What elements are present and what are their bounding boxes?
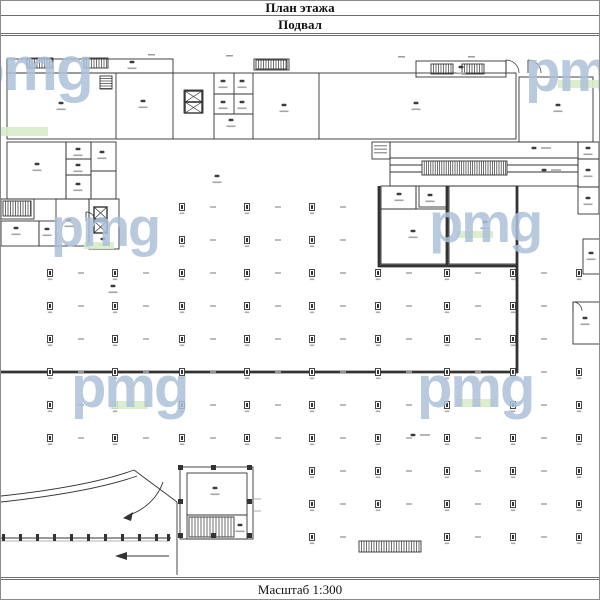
room-label-mark <box>420 434 430 436</box>
room <box>449 186 517 264</box>
grid-dim-mark <box>541 404 547 406</box>
column-label-mark <box>310 213 315 215</box>
grid-dim-mark <box>210 437 216 439</box>
grid-dim-mark <box>541 536 547 538</box>
column-label-mark <box>48 312 53 314</box>
column-label-mark <box>245 345 250 347</box>
column-label-mark <box>180 312 185 314</box>
wall-post <box>247 499 252 504</box>
column-label-mark <box>511 411 516 413</box>
grid-dim-mark <box>275 305 281 307</box>
wall-post <box>87 534 90 541</box>
room-fixture-mark <box>221 101 226 104</box>
grid-dim-mark <box>78 404 84 406</box>
grid-dim-mark <box>340 470 346 472</box>
column-label-mark <box>511 279 516 281</box>
grid-dim-mark <box>406 338 412 340</box>
room-fixture-mark <box>556 104 561 107</box>
grid-dim-mark <box>275 272 281 274</box>
column-label-mark <box>180 246 185 248</box>
room-fixture-mark <box>215 175 220 178</box>
room-label-mark <box>65 226 74 228</box>
arrow-head <box>115 552 127 560</box>
scale-label: Масштаб 1:300 <box>258 582 342 597</box>
grid-dim-mark <box>475 503 481 505</box>
column-label-mark <box>511 378 516 380</box>
column <box>311 337 313 341</box>
room-fixture-mark <box>67 219 72 222</box>
window-hatch <box>431 64 453 74</box>
column-label-mark <box>48 345 53 347</box>
column <box>246 436 248 440</box>
room-fixture-mark <box>411 230 416 233</box>
wall-post <box>178 499 183 504</box>
room <box>381 186 416 209</box>
grid-dim-mark <box>78 437 84 439</box>
column-label-mark <box>180 378 185 380</box>
grid-dim-mark <box>143 338 149 340</box>
column <box>246 271 248 275</box>
wall-post <box>211 465 216 470</box>
room-fixture-mark <box>76 164 81 167</box>
room-fixture-mark <box>141 100 146 103</box>
column-label-mark <box>376 279 381 281</box>
grid-dim-mark <box>340 272 346 274</box>
column <box>512 271 514 275</box>
grid-dim-mark <box>210 404 216 406</box>
column <box>246 238 248 242</box>
grid-dim-mark <box>143 404 149 406</box>
room-label-mark <box>584 176 593 178</box>
column-label-mark <box>113 279 118 281</box>
grid-dim-mark <box>406 305 412 307</box>
column <box>512 436 514 440</box>
column <box>446 403 448 407</box>
column <box>181 205 183 209</box>
room <box>56 199 89 246</box>
room-label-mark <box>280 111 289 113</box>
room-label-mark <box>426 201 435 203</box>
room-label-mark <box>74 155 83 157</box>
column <box>49 271 51 275</box>
dim-text-mark <box>226 55 233 57</box>
column <box>311 271 313 275</box>
grid-dim-mark <box>541 305 547 307</box>
column <box>512 304 514 308</box>
column <box>377 469 379 473</box>
column <box>311 535 313 539</box>
room-fixture-mark <box>397 193 402 196</box>
column-label-mark <box>376 411 381 413</box>
column <box>578 502 580 506</box>
grid-dim-mark <box>340 437 346 439</box>
top-rooms-band <box>7 73 516 139</box>
room-fixture-mark <box>586 147 591 150</box>
wall-post <box>178 465 183 470</box>
room-fixture-mark <box>282 104 287 107</box>
room-label-mark <box>12 234 21 236</box>
column <box>114 337 116 341</box>
column <box>512 469 514 473</box>
wall-post <box>138 534 141 541</box>
column-label-mark <box>310 279 315 281</box>
column <box>311 403 313 407</box>
column-label-mark <box>245 312 250 314</box>
column-label-mark <box>113 444 118 446</box>
column <box>446 370 448 374</box>
room-fixture-mark <box>100 151 105 154</box>
wall-post <box>70 534 73 541</box>
column <box>578 370 580 374</box>
column <box>114 370 116 374</box>
wall-post <box>178 533 183 538</box>
column <box>446 535 448 539</box>
column <box>181 337 183 341</box>
column-label-mark <box>445 543 450 545</box>
wall-post <box>36 534 39 541</box>
room-fixture-mark <box>35 163 40 166</box>
column-label-mark <box>376 477 381 479</box>
dim-text-mark <box>374 145 387 146</box>
room-label-mark <box>587 259 596 261</box>
column <box>246 403 248 407</box>
column <box>181 304 183 308</box>
door-swing <box>573 302 582 311</box>
stair-hatch <box>3 201 31 216</box>
grid-dim-mark <box>275 206 281 208</box>
column <box>377 436 379 440</box>
room-label-mark <box>554 111 563 113</box>
wall-post <box>2 534 5 541</box>
grid-dim-mark <box>275 338 281 340</box>
room-fixture-mark <box>221 80 226 83</box>
column <box>311 502 313 506</box>
column-label-mark <box>310 345 315 347</box>
wall-post <box>155 534 158 541</box>
grid-dim-mark <box>143 305 149 307</box>
room-label-mark <box>43 235 52 237</box>
column-label-mark <box>445 411 450 413</box>
column <box>377 370 379 374</box>
dim-text-mark <box>148 54 155 56</box>
grid-dim-mark <box>340 305 346 307</box>
column-label-mark <box>310 411 315 413</box>
room-fixture-mark <box>76 148 81 151</box>
room-label-mark <box>98 158 107 160</box>
column-label-mark <box>511 444 516 446</box>
column <box>311 304 313 308</box>
wall-post <box>247 533 252 538</box>
column <box>578 535 580 539</box>
column <box>311 436 313 440</box>
column-label-mark <box>445 510 450 512</box>
column <box>512 502 514 506</box>
column-label-mark <box>48 411 53 413</box>
column-label-mark <box>445 312 450 314</box>
column-label-mark <box>445 345 450 347</box>
grid-dim-mark <box>406 470 412 472</box>
column-label-mark <box>245 444 250 446</box>
room-fixture-mark <box>59 102 64 105</box>
wall-post <box>104 534 107 541</box>
wall-post <box>167 534 170 541</box>
room-fixture-mark <box>586 169 591 172</box>
room-label-mark <box>57 109 66 111</box>
column-label-mark <box>180 213 185 215</box>
column-label-mark <box>376 345 381 347</box>
column-label-mark <box>48 279 53 281</box>
window-hatch <box>84 58 108 68</box>
column <box>114 304 116 308</box>
column <box>578 436 580 440</box>
column-label-mark <box>113 411 118 413</box>
ramp-wall <box>134 470 177 502</box>
column <box>512 535 514 539</box>
grid-dim-mark <box>210 371 216 373</box>
room-fixture-mark <box>229 119 234 122</box>
column <box>512 370 514 374</box>
scale-bar: Масштаб 1:300 <box>1 577 599 600</box>
grid-dim-mark <box>340 536 346 538</box>
grid-dim-mark <box>475 470 481 472</box>
ramp-curve <box>1 476 137 502</box>
column-label-mark <box>245 246 250 248</box>
top-right-room <box>519 77 593 142</box>
column-label-mark <box>445 378 450 380</box>
grid-dim-mark <box>406 272 412 274</box>
grid-dim-mark <box>406 437 412 439</box>
grid-dim-mark <box>340 338 346 340</box>
column-label-mark <box>577 510 582 512</box>
column-label-mark <box>376 444 381 446</box>
grid-dim-mark <box>340 206 346 208</box>
room <box>583 239 599 274</box>
column-label-mark <box>511 477 516 479</box>
column-label-mark <box>511 312 516 314</box>
column-label-mark <box>310 312 315 314</box>
column <box>114 271 116 275</box>
grid-dim-mark <box>340 503 346 505</box>
grid-dim-mark <box>475 371 481 373</box>
column <box>49 436 51 440</box>
grid-dim-mark <box>78 371 84 373</box>
column <box>311 205 313 209</box>
column <box>446 469 448 473</box>
column-label-mark <box>113 312 118 314</box>
column-label-mark <box>376 378 381 380</box>
room-label-mark <box>409 237 418 239</box>
column-label-mark <box>245 378 250 380</box>
room-fixture-mark <box>411 434 416 437</box>
room-fixture-mark <box>14 227 19 230</box>
room-fixture-mark <box>240 80 245 83</box>
column-label-mark <box>48 378 53 380</box>
grid-dim-mark <box>78 338 84 340</box>
grid-dim-mark <box>406 371 412 373</box>
column-label-mark <box>577 444 582 446</box>
room-fixture-mark <box>213 487 218 490</box>
column-label-mark <box>445 444 450 446</box>
room-fixture-mark <box>240 101 245 104</box>
column-label-mark <box>310 510 315 512</box>
room-label-mark <box>139 107 148 109</box>
column <box>446 271 448 275</box>
column-label-mark <box>180 345 185 347</box>
grid-dim-mark <box>143 371 149 373</box>
room-fixture-mark <box>586 197 591 200</box>
room <box>39 221 56 246</box>
column <box>377 403 379 407</box>
grid-dim-mark <box>210 305 216 307</box>
column <box>49 304 51 308</box>
floor-plan-page: План этажа Подвал pmgpmgpmgpmgpmgpmg Мас… <box>0 0 600 600</box>
floor-plan-drawing <box>1 36 599 577</box>
wall-post <box>121 534 124 541</box>
room-label-mark <box>74 190 83 192</box>
column <box>578 469 580 473</box>
column <box>114 436 116 440</box>
room-label-mark <box>128 68 137 70</box>
column <box>512 337 514 341</box>
floor-name-bar: Подвал <box>1 16 599 36</box>
column <box>246 370 248 374</box>
room <box>419 186 447 207</box>
room-fixture-mark <box>76 183 81 186</box>
room-label-mark <box>584 204 593 206</box>
wall-post <box>247 465 252 470</box>
grid-dim-mark <box>143 437 149 439</box>
room-label-mark <box>211 494 220 496</box>
column-label-mark <box>113 378 118 380</box>
grid-dim-mark <box>475 536 481 538</box>
column-label-mark <box>310 477 315 479</box>
column <box>181 403 183 407</box>
ramp-corridor <box>390 142 578 158</box>
grid-dim-mark <box>406 503 412 505</box>
column <box>181 271 183 275</box>
room-label-mark <box>551 169 561 171</box>
grid-dim-mark <box>541 503 547 505</box>
column-label-mark <box>245 213 250 215</box>
grid-dim-mark <box>541 338 547 340</box>
stair-room <box>180 467 253 539</box>
room-label-mark <box>238 108 247 110</box>
column <box>578 403 580 407</box>
room-fixture-mark <box>542 169 547 172</box>
column-label-mark <box>445 477 450 479</box>
room-label-mark <box>481 228 490 230</box>
floor-plan-canvas: pmgpmgpmgpmgpmgpmg <box>1 36 599 577</box>
room-fixture-mark <box>589 252 594 255</box>
room-label-mark <box>581 324 590 326</box>
column-label-mark <box>511 510 516 512</box>
room-fixture-mark <box>428 194 433 197</box>
grid-dim-mark <box>340 239 346 241</box>
wall-post <box>19 534 22 541</box>
column-label-mark <box>577 477 582 479</box>
grid-dim-mark <box>210 206 216 208</box>
room-fixture-mark <box>238 524 243 527</box>
column <box>114 403 116 407</box>
grid-dim-mark <box>541 437 547 439</box>
column-label-mark <box>245 411 250 413</box>
room-fixture-mark <box>111 285 116 288</box>
column-label-mark <box>310 378 315 380</box>
column-label-mark <box>577 378 582 380</box>
label-box <box>372 142 390 159</box>
grid-dim-mark <box>275 404 281 406</box>
grid-dim-mark <box>78 305 84 307</box>
grid-dim-mark <box>475 404 481 406</box>
column-label-mark <box>511 345 516 347</box>
room-fixture-mark <box>459 66 464 69</box>
room-fixture-mark <box>45 228 50 231</box>
grid-dim-mark <box>406 404 412 406</box>
room-label-mark <box>219 87 228 89</box>
column-label-mark <box>113 345 118 347</box>
column <box>446 304 448 308</box>
grid-dim-mark <box>541 470 547 472</box>
stair-hatch <box>100 76 112 89</box>
dim-text-mark <box>398 56 405 58</box>
column-label-mark <box>310 543 315 545</box>
room-label-mark <box>74 171 83 173</box>
room-label-mark <box>33 170 42 172</box>
room-label-mark <box>227 126 236 128</box>
column <box>181 436 183 440</box>
grid-dim-mark <box>340 404 346 406</box>
column <box>446 337 448 341</box>
column-label-mark <box>310 246 315 248</box>
door-swing <box>506 60 519 73</box>
column-label-mark <box>180 411 185 413</box>
column <box>512 403 514 407</box>
wall-post <box>211 533 216 538</box>
grid-dim-mark <box>78 272 84 274</box>
wall-post <box>53 534 56 541</box>
column <box>49 370 51 374</box>
grid-dim-mark <box>210 239 216 241</box>
column <box>578 271 580 275</box>
grid-dim-mark <box>210 272 216 274</box>
column-label-mark <box>310 444 315 446</box>
room-label-mark <box>584 154 593 156</box>
stair-zone <box>187 515 247 539</box>
room-fixture-mark <box>101 238 106 241</box>
column <box>181 238 183 242</box>
room-fixture-mark <box>130 61 135 64</box>
room-label-mark <box>236 531 245 533</box>
room-label-mark <box>99 245 108 247</box>
plan-title-bar: План этажа <box>1 1 599 16</box>
column-label-mark <box>180 279 185 281</box>
column <box>246 205 248 209</box>
column <box>49 403 51 407</box>
column-label-mark <box>48 444 53 446</box>
room-label-mark <box>395 200 404 202</box>
column <box>446 502 448 506</box>
column <box>246 337 248 341</box>
column <box>246 304 248 308</box>
grid-dim-mark <box>210 338 216 340</box>
column <box>311 238 313 242</box>
dim-text-mark <box>468 56 475 58</box>
rooms-strip <box>91 142 116 199</box>
column <box>377 271 379 275</box>
column <box>311 370 313 374</box>
room-label-mark <box>457 73 466 75</box>
column <box>311 469 313 473</box>
